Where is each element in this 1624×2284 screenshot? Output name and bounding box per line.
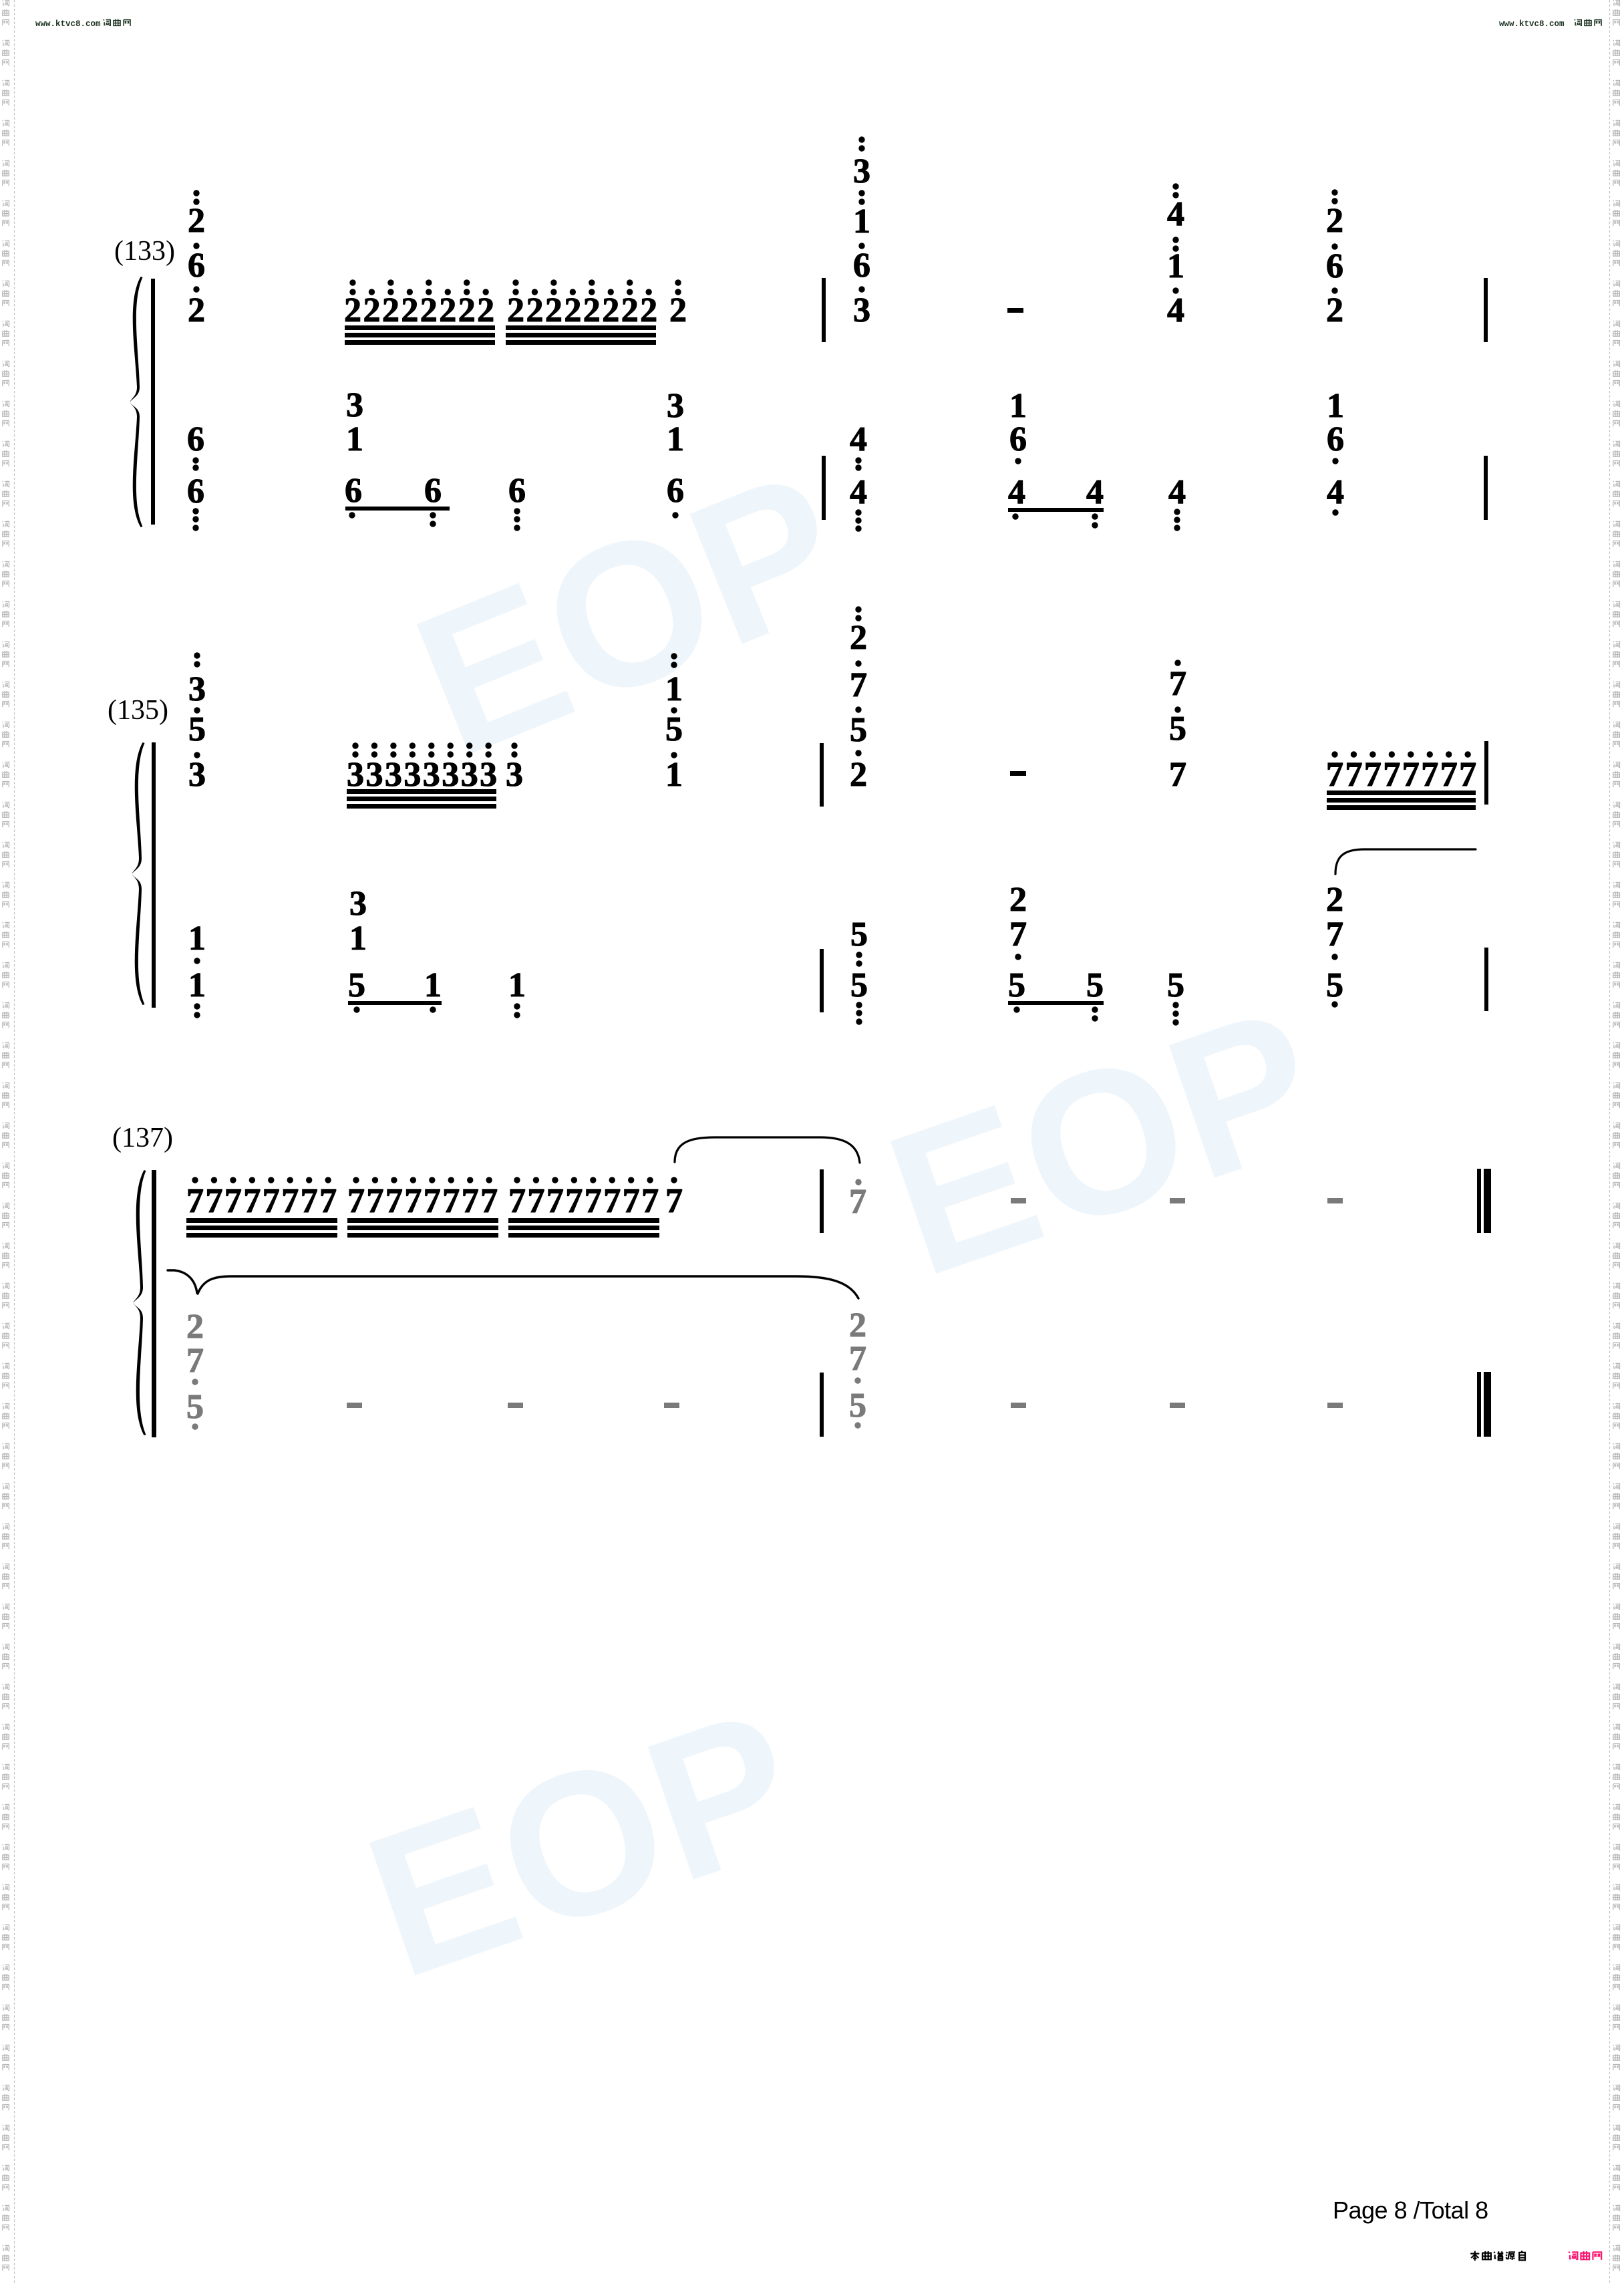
svg-text:3: 3: [403, 756, 421, 794]
svg-text:www.ktvc8.com: www.ktvc8.com: [1499, 19, 1565, 29]
svg-text:3: 3: [480, 756, 497, 794]
svg-text:7: 7: [263, 1182, 280, 1220]
svg-text:7: 7: [442, 1182, 460, 1220]
svg-text:7: 7: [462, 1182, 479, 1220]
svg-text:3: 3: [349, 885, 367, 923]
svg-text:1: 1: [346, 420, 363, 458]
svg-text:7: 7: [849, 1183, 866, 1221]
svg-text:6: 6: [1327, 420, 1344, 458]
svg-text:2: 2: [849, 1306, 866, 1344]
svg-text:7: 7: [1169, 665, 1186, 703]
svg-text:(133): (133): [114, 236, 175, 267]
svg-text:2: 2: [545, 291, 562, 329]
svg-text:2: 2: [344, 291, 361, 329]
svg-text:7: 7: [850, 666, 867, 704]
svg-text:EOP: EOP: [342, 1665, 823, 2021]
svg-text:7: 7: [319, 1182, 337, 1220]
svg-text:7: 7: [1169, 756, 1186, 794]
svg-text:7: 7: [385, 1182, 403, 1220]
svg-text:1: 1: [665, 756, 683, 794]
svg-text:2: 2: [850, 756, 867, 794]
svg-text:5: 5: [849, 1387, 866, 1425]
svg-text:3: 3: [667, 387, 684, 425]
svg-text:5: 5: [1086, 966, 1104, 1004]
svg-text:3: 3: [442, 756, 459, 794]
svg-text:1: 1: [349, 919, 367, 958]
svg-text:1: 1: [853, 202, 870, 241]
svg-text:5: 5: [1326, 966, 1343, 1004]
svg-text:3: 3: [346, 386, 363, 424]
svg-text:2: 2: [420, 291, 438, 329]
svg-text:7: 7: [186, 1342, 204, 1380]
svg-text:6: 6: [667, 472, 684, 510]
svg-text:7: 7: [1326, 915, 1343, 954]
svg-text:7: 7: [603, 1182, 621, 1220]
svg-text:5: 5: [850, 966, 868, 1004]
svg-text:3: 3: [188, 756, 206, 794]
svg-text:2: 2: [602, 291, 619, 329]
svg-text:2: 2: [1326, 291, 1343, 329]
svg-text:5: 5: [1167, 966, 1184, 1004]
svg-text:(135): (135): [108, 695, 168, 726]
svg-text:7: 7: [186, 1182, 204, 1220]
svg-text:5: 5: [348, 966, 365, 1004]
svg-text:5: 5: [665, 710, 683, 748]
svg-text:3: 3: [188, 670, 206, 708]
svg-text:4: 4: [1086, 473, 1104, 511]
svg-text:2: 2: [382, 291, 399, 329]
svg-text:6: 6: [424, 472, 442, 510]
svg-text:5: 5: [188, 710, 206, 748]
svg-text:1: 1: [1167, 247, 1184, 285]
svg-text:www.ktvc8.com: www.ktvc8.com: [35, 19, 101, 29]
svg-text:1: 1: [667, 420, 684, 458]
svg-text:4: 4: [1008, 473, 1025, 511]
svg-text:2: 2: [526, 291, 543, 329]
svg-text:2: 2: [564, 291, 581, 329]
svg-text:3: 3: [506, 756, 523, 794]
svg-text:2: 2: [186, 1308, 204, 1346]
svg-text:7: 7: [546, 1182, 564, 1220]
svg-text:3: 3: [853, 152, 870, 190]
svg-text:EOP: EOP: [863, 964, 1344, 1319]
svg-text:2: 2: [439, 291, 456, 329]
svg-text:7: 7: [849, 1340, 866, 1378]
svg-text:(137): (137): [112, 1123, 173, 1153]
svg-text:7: 7: [224, 1182, 242, 1220]
svg-text:7: 7: [1364, 756, 1382, 794]
svg-text:7: 7: [585, 1182, 602, 1220]
svg-text:2: 2: [458, 291, 476, 329]
svg-text:3: 3: [385, 756, 402, 794]
svg-text:4: 4: [850, 420, 867, 458]
svg-text:4: 4: [1327, 473, 1344, 511]
svg-text:1: 1: [1009, 387, 1027, 425]
svg-text:7: 7: [1326, 756, 1343, 794]
svg-text:7: 7: [1383, 756, 1400, 794]
svg-text:7: 7: [508, 1182, 526, 1220]
svg-text:7: 7: [665, 1182, 683, 1220]
svg-text:3: 3: [347, 756, 364, 794]
svg-text:7: 7: [281, 1182, 299, 1220]
svg-text:6: 6: [187, 472, 204, 511]
svg-text:4: 4: [1167, 291, 1184, 329]
svg-text:EOP: EOP: [387, 427, 872, 799]
svg-text:2: 2: [363, 291, 380, 329]
svg-text:2: 2: [583, 291, 601, 329]
svg-text:4: 4: [850, 473, 867, 511]
svg-text:7: 7: [641, 1182, 659, 1220]
svg-text:1: 1: [188, 966, 206, 1004]
svg-text:5: 5: [850, 915, 868, 954]
svg-text:Page 8 /Total 8: Page 8 /Total 8: [1333, 2196, 1488, 2224]
svg-text:5: 5: [1008, 966, 1025, 1004]
svg-text:7: 7: [1402, 756, 1420, 794]
svg-text:5: 5: [186, 1388, 204, 1426]
svg-text:1: 1: [188, 919, 206, 958]
svg-text:7: 7: [1009, 915, 1027, 954]
svg-text:1: 1: [508, 966, 526, 1004]
svg-text:2: 2: [640, 291, 657, 329]
svg-text:6: 6: [187, 420, 204, 458]
svg-text:2: 2: [1326, 881, 1343, 919]
svg-text:7: 7: [347, 1182, 365, 1220]
svg-text:7: 7: [565, 1182, 583, 1220]
svg-text:6: 6: [1326, 247, 1343, 285]
svg-text:2: 2: [1326, 202, 1343, 240]
svg-text:7: 7: [424, 1182, 441, 1220]
svg-text:7: 7: [527, 1182, 544, 1220]
svg-text:7: 7: [1440, 756, 1458, 794]
svg-text:2: 2: [188, 202, 205, 240]
svg-text:7: 7: [480, 1182, 498, 1220]
svg-text:7: 7: [623, 1182, 640, 1220]
svg-text:2: 2: [1009, 881, 1027, 919]
svg-text:3: 3: [461, 756, 478, 794]
svg-text:6: 6: [853, 247, 870, 285]
svg-text:7: 7: [1421, 756, 1438, 794]
svg-text:3: 3: [423, 756, 440, 794]
svg-text:7: 7: [366, 1182, 383, 1220]
svg-text:7: 7: [1345, 756, 1362, 794]
svg-text:7: 7: [243, 1182, 261, 1220]
svg-text:3: 3: [365, 756, 383, 794]
svg-text:2: 2: [621, 291, 639, 329]
svg-text:4: 4: [1167, 195, 1184, 233]
svg-text:7: 7: [1459, 756, 1476, 794]
svg-text:7: 7: [205, 1182, 222, 1220]
svg-text:5: 5: [1169, 710, 1186, 748]
svg-text:1: 1: [1327, 387, 1344, 425]
svg-text:5: 5: [850, 711, 867, 749]
svg-text:2: 2: [669, 291, 687, 329]
svg-text:1: 1: [424, 966, 442, 1004]
svg-text:7: 7: [301, 1182, 318, 1220]
svg-text:2: 2: [507, 291, 524, 329]
svg-text:7: 7: [404, 1182, 422, 1220]
svg-text:6: 6: [508, 472, 526, 510]
svg-text:2: 2: [401, 291, 418, 329]
svg-text:2: 2: [477, 291, 494, 329]
svg-text:1: 1: [665, 670, 683, 708]
svg-text:4: 4: [1168, 473, 1186, 511]
svg-text:3: 3: [853, 291, 870, 329]
svg-text:6: 6: [188, 247, 205, 285]
svg-text:2: 2: [850, 619, 867, 657]
svg-text:2: 2: [188, 291, 205, 329]
svg-text:6: 6: [1009, 420, 1027, 458]
svg-text:6: 6: [345, 472, 362, 510]
